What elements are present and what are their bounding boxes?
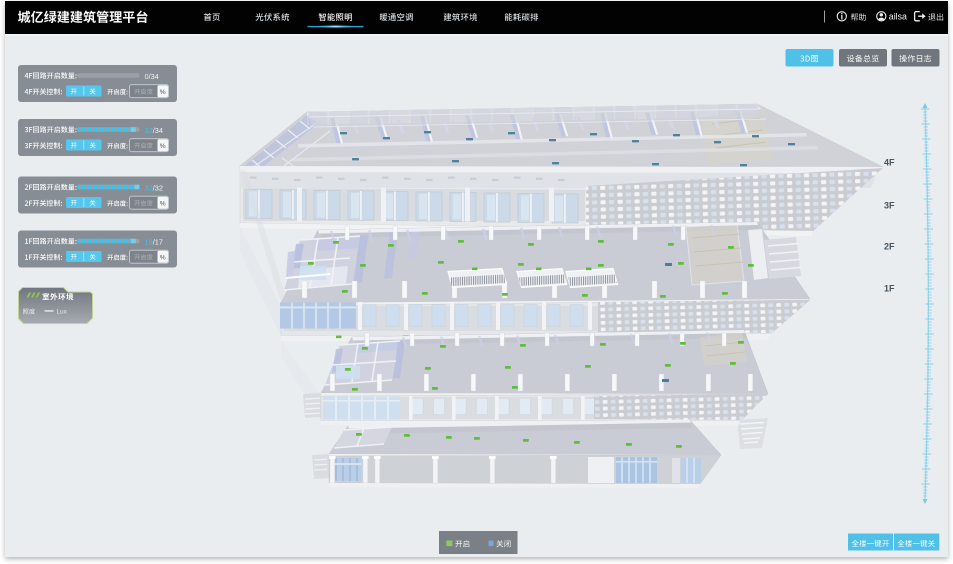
svg-text:%: % bbox=[160, 143, 166, 150]
svg-text:%: % bbox=[160, 89, 166, 96]
svg-text:2F: 2F bbox=[884, 241, 895, 251]
svg-text:32/32: 32/32 bbox=[145, 184, 164, 193]
svg-text:%: % bbox=[160, 201, 166, 208]
svg-text:0/34: 0/34 bbox=[145, 72, 159, 81]
svg-text:1F: 1F bbox=[884, 283, 895, 293]
svg-text:16/17: 16/17 bbox=[145, 238, 164, 247]
svg-text:Lux: Lux bbox=[57, 309, 68, 316]
svg-text:4F: 4F bbox=[884, 157, 895, 167]
svg-text:3F: 3F bbox=[884, 200, 895, 210]
svg-text:%: % bbox=[160, 255, 166, 262]
svg-text:32/34: 32/34 bbox=[145, 126, 164, 135]
svg-text:ailsa: ailsa bbox=[889, 11, 907, 21]
